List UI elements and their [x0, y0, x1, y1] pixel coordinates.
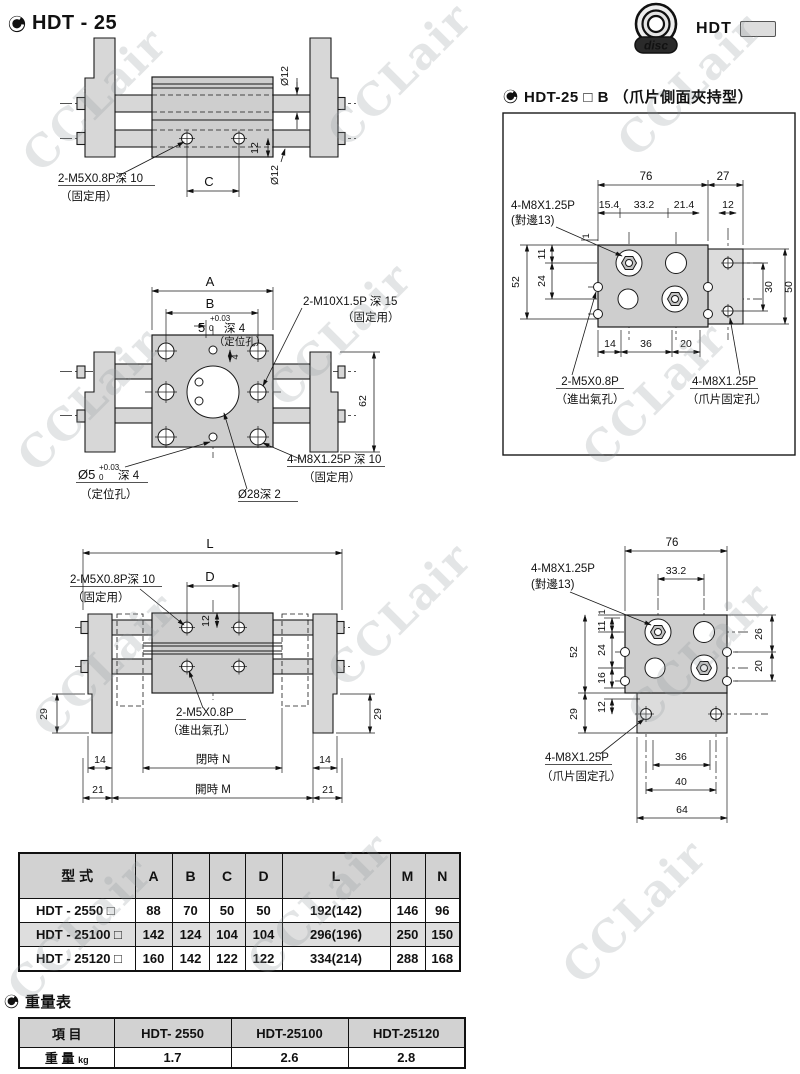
value-cell: 192(142) — [282, 899, 390, 923]
thread-label: 4-M8X1.25P 深 10 — [287, 452, 381, 466]
thread-note: （固定用） — [60, 189, 118, 203]
col-header: B — [172, 853, 209, 899]
value-cell: 334(214) — [282, 947, 390, 972]
dim-label: A — [206, 274, 215, 289]
port-note: （進出氣孔） — [167, 723, 236, 737]
dim-label: 深 4 — [224, 321, 246, 335]
dim-label: 27 — [717, 171, 730, 183]
dim-label: 14 — [319, 754, 331, 766]
dim-label: 40 — [675, 776, 687, 788]
tolerance: +0.03 — [210, 314, 231, 323]
table-row: HDT - 25100 □ 142 124 104 104 296(196) 2… — [19, 923, 460, 947]
value-cell: 142 — [172, 947, 209, 972]
port-label: 2-M5X0.8P — [176, 707, 234, 719]
dim-label: 33.2 — [634, 199, 655, 211]
dim-label: 33.2 — [666, 565, 687, 577]
thread-label: 4-M8X1.25P — [511, 200, 575, 212]
dim-label: L — [206, 536, 213, 551]
port-label: 2-M5X0.8P — [561, 376, 619, 388]
page-title: HDT - 25 — [8, 12, 117, 35]
dim-label: 52 — [510, 276, 522, 288]
dim-label: 11 — [536, 248, 548, 259]
table-header-row: 項 目 HDT- 2550 HDT-25100 HDT-25120 — [19, 1018, 465, 1048]
dim-label: 29 — [568, 708, 580, 720]
bullet-icon — [503, 89, 518, 104]
value-cell: 296(196) — [282, 923, 390, 947]
dim-label: 11 — [596, 620, 608, 631]
dim-label: 14 — [94, 754, 106, 766]
thread-label: 4-M8X1.25P — [531, 563, 595, 575]
dim-label: 52 — [568, 646, 580, 658]
thread-note: （固定用） — [72, 590, 130, 604]
thread-note: (對邊13) — [531, 577, 575, 591]
thread-label: 2-M5X0.8P深 10 — [58, 171, 143, 185]
weight-row-label: 重 量 — [45, 1051, 75, 1066]
dim-label: 24 — [536, 275, 548, 287]
side-view-drawing: Ø12 12 Ø12 C 2-M5X0.8P深 10 （固定用） — [58, 38, 356, 203]
thread-note: （固定用） — [303, 470, 361, 484]
dim-label: 5 — [198, 320, 205, 335]
col-header: HDT-25100 — [231, 1018, 348, 1048]
section-b-title: HDT-25 □ B （爪片側面夾持型） — [503, 86, 753, 107]
dim-label: 4 — [230, 354, 241, 359]
disc-logo-icon: disc — [626, 2, 688, 56]
table-row: HDT - 2550 □ 88 70 50 50 192(142) 146 96 — [19, 899, 460, 923]
dim-label: 12 — [249, 142, 261, 154]
dim-label: 62 — [357, 395, 369, 407]
dim-label: Ø12 — [279, 66, 291, 86]
col-header: M — [390, 853, 425, 899]
claw-view-drawing: 76 33.2 4-M8X1.25P (對邊13) 1 11 24 16 52 — [531, 537, 776, 823]
port-note: （進出氣孔） — [556, 392, 625, 406]
value-cell: 96 — [425, 899, 460, 923]
weight-section-title-text: 重量表 — [25, 991, 72, 1012]
table-row: HDT - 25120 □ 160 142 122 122 334(214) 2… — [19, 947, 460, 972]
dim-label: 76 — [640, 171, 653, 183]
brand-label: HDT — [696, 20, 732, 38]
col-header: L — [282, 853, 390, 899]
value-cell: 288 — [390, 947, 425, 972]
dim-label: 26 — [753, 628, 765, 640]
section-b-title-text: HDT-25 □ B （爪片側面夾持型） — [524, 86, 753, 107]
value-cell: 124 — [172, 923, 209, 947]
front-view-drawing: A B +0.03 5 0 深 4 （定位孔） 4 2-M10X1.5P 深 1… — [60, 274, 400, 502]
value-cell: 104 — [209, 923, 245, 947]
thread-label: 2-M5X0.8P深 10 — [70, 572, 155, 586]
dim-label: 21 — [322, 784, 334, 796]
claw-note: （爪片固定孔） — [541, 769, 622, 783]
dimension-table: 型 式 A B C D L M N HDT - 2550 □ 88 70 50 … — [18, 852, 461, 972]
stroke-view-drawing: L D 2-M5X0.8P深 10 （固定用） 12 2-M5X0.8P （進出… — [38, 536, 384, 803]
dim-label: 12 — [722, 199, 734, 211]
dim-label: 36 — [640, 338, 652, 350]
tolerance: 0 — [209, 324, 214, 333]
dim-label: 76 — [666, 537, 679, 549]
model-cell: HDT - 25100 □ — [19, 923, 135, 947]
weight-unit: kg — [78, 1055, 89, 1065]
claw-label: 4-M8X1.25P — [692, 376, 756, 388]
note: （定位孔） — [214, 335, 267, 348]
tolerance: 0 — [99, 473, 104, 482]
value-cell: 2.6 — [231, 1048, 348, 1069]
thread-note: （固定用） — [342, 310, 400, 324]
claw-note: （爪片固定孔） — [687, 392, 768, 406]
weight-section-title: 重量表 — [4, 991, 72, 1012]
dim-label: Ø5 — [78, 467, 95, 482]
dim-label: 24 — [596, 644, 608, 656]
disc-badge-text: disc — [644, 39, 668, 53]
dim-label: 30 — [763, 281, 775, 293]
claw-label: 4-M8X1.25P — [545, 752, 609, 764]
dim-label: Ø28深 2 — [238, 487, 281, 501]
value-cell: 122 — [245, 947, 282, 972]
dim-label: 14 — [604, 338, 616, 350]
col-header: A — [135, 853, 172, 899]
col-header: N — [425, 853, 460, 899]
dim-label: 20 — [680, 338, 692, 350]
col-header: 項 目 — [19, 1018, 114, 1048]
technical-drawings: Ø12 12 Ø12 C 2-M5X0.8P深 10 （固定用） — [0, 0, 800, 850]
brand-logo: disc HDT — [626, 2, 776, 56]
value-cell: 150 — [425, 923, 460, 947]
dim-label: B — [206, 296, 215, 311]
dim-label: C — [204, 174, 213, 189]
note: （定位孔） — [80, 487, 138, 501]
value-cell: 168 — [425, 947, 460, 972]
value-cell: 160 — [135, 947, 172, 972]
value-cell: 250 — [390, 923, 425, 947]
tolerance: +0.03 — [99, 463, 120, 472]
value-cell: 1.7 — [114, 1048, 231, 1069]
value-cell: 70 — [172, 899, 209, 923]
page-title-text: HDT - 25 — [32, 12, 117, 35]
row-label-cell: 重 量 kg — [19, 1048, 114, 1069]
dim-label: 20 — [753, 660, 765, 672]
col-header: C — [209, 853, 245, 899]
value-cell: 2.8 — [348, 1048, 465, 1069]
dim-label: 50 — [783, 281, 795, 293]
dim-label: 15.4 — [599, 199, 620, 211]
datasheet-page: HDT - 25 disc HDT HDT-25 □ B （爪片側面夾持型） 重… — [0, 0, 800, 1074]
col-header: D — [245, 853, 282, 899]
bullet-icon — [4, 994, 19, 1009]
dim-label: 21 — [92, 784, 104, 796]
table-row: 重 量 kg 1.7 2.6 2.8 — [19, 1048, 465, 1069]
value-cell: 142 — [135, 923, 172, 947]
value-cell: 50 — [209, 899, 245, 923]
dim-label: 29 — [372, 708, 384, 720]
dim-label: 12 — [596, 701, 608, 713]
thread-label: 2-M10X1.5P 深 15 — [303, 294, 397, 308]
dim-label: 36 — [675, 751, 687, 763]
brand-model-box — [740, 21, 776, 37]
thread-note: (對邊13) — [511, 213, 555, 227]
dim-label: 閉時 N — [196, 753, 231, 766]
bullet-icon — [8, 15, 26, 33]
dim-label: D — [205, 569, 214, 584]
side-grip-drawing: 76 27 15.4 33.2 21.4 12 4-M8X1.25P (對邊13… — [503, 113, 795, 455]
value-cell: 50 — [245, 899, 282, 923]
table-header-row: 型 式 A B C D L M N — [19, 853, 460, 899]
weight-table: 項 目 HDT- 2550 HDT-25100 HDT-25120 重 量 kg… — [18, 1017, 466, 1069]
dim-label: 1 — [581, 233, 592, 238]
dim-label: 深 4 — [118, 468, 140, 482]
dim-label: 12 — [200, 615, 212, 627]
dim-label: 1 — [597, 609, 608, 614]
value-cell: 146 — [390, 899, 425, 923]
model-cell: HDT - 2550 □ — [19, 899, 135, 923]
value-cell: 104 — [245, 923, 282, 947]
dim-label: 21.4 — [674, 199, 695, 211]
value-cell: 88 — [135, 899, 172, 923]
dim-label: Ø12 — [269, 165, 281, 185]
col-header: 型 式 — [19, 853, 135, 899]
col-header: HDT- 2550 — [114, 1018, 231, 1048]
dim-label: 開時 M — [195, 783, 231, 796]
model-cell: HDT - 25120 □ — [19, 947, 135, 972]
dim-label: 64 — [676, 804, 688, 816]
dim-label: 16 — [596, 672, 608, 684]
value-cell: 122 — [209, 947, 245, 972]
dim-label: 29 — [38, 708, 50, 720]
col-header: HDT-25120 — [348, 1018, 465, 1048]
